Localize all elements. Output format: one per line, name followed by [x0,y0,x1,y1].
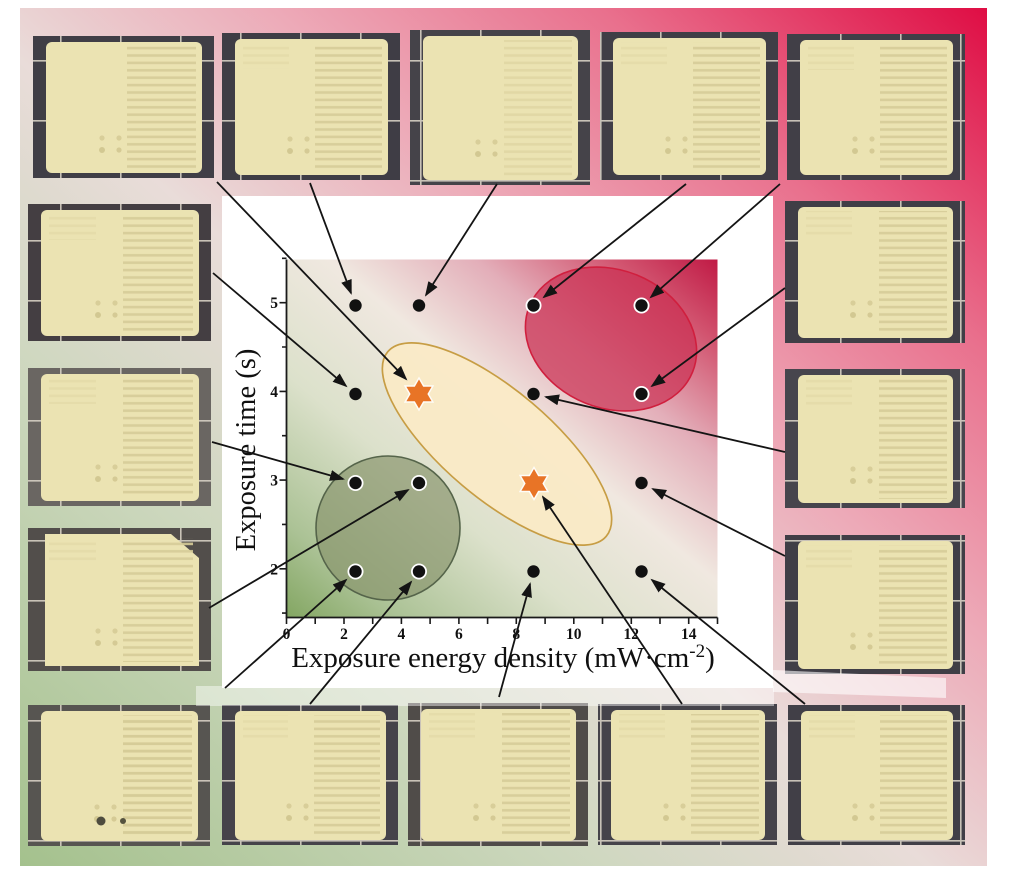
svg-text:2: 2 [340,626,348,643]
svg-text:6: 6 [455,626,463,643]
svg-text:5: 5 [270,295,278,312]
svg-text:4: 4 [398,626,406,643]
svg-text:4: 4 [270,384,278,401]
svg-text:Exposure time (s): Exposure time (s) [231,349,262,552]
svg-text:10: 10 [566,626,582,643]
svg-text:3: 3 [270,473,278,490]
